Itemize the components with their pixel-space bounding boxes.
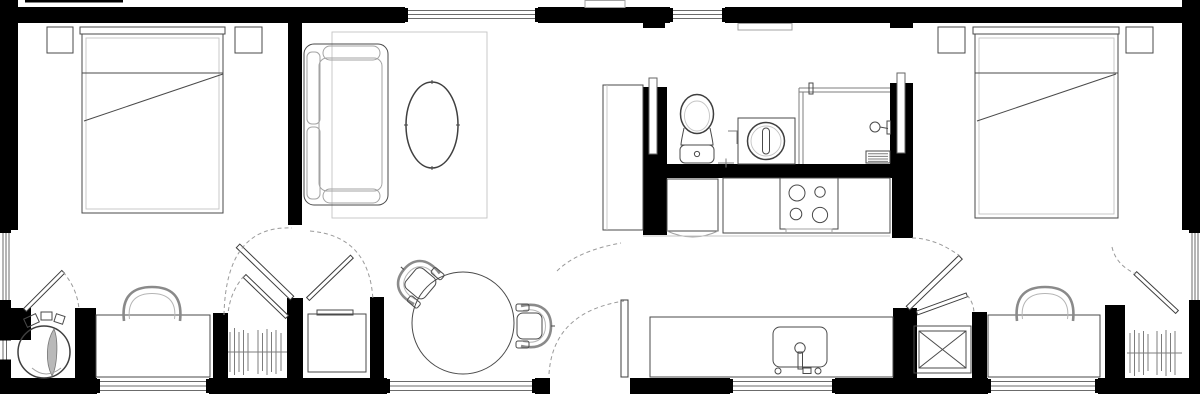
- bath-wall-shelf: [738, 24, 792, 31]
- storage-niche: [308, 310, 366, 372]
- washing-machine: [738, 118, 795, 164]
- toilet: [680, 95, 714, 164]
- window-top-living: [405, 7, 538, 23]
- tall-cabinet: [603, 85, 643, 230]
- window-bottom-desk-right: [988, 378, 1098, 394]
- closet-left: [228, 328, 287, 375]
- shower-head-icon: [870, 121, 891, 134]
- pocket-door-left: [649, 78, 657, 154]
- appliance-box: [914, 326, 971, 373]
- round-dining-table: [412, 272, 514, 374]
- niche-door-leaf: [307, 255, 354, 300]
- bedroom-left: [47, 27, 262, 213]
- nightstand: [1126, 27, 1153, 53]
- entry-door-leaf: [621, 300, 628, 377]
- door-head-stub-right: [890, 23, 913, 28]
- entry-door: [549, 243, 628, 377]
- desk-chair: [124, 287, 181, 321]
- dining-area: [387, 250, 555, 374]
- niche-right-pier: [370, 297, 384, 378]
- window-bottom-dining: [387, 378, 535, 394]
- shower-enclosure: [799, 83, 891, 164]
- appliance-right-pier: [972, 312, 987, 378]
- closet-left-pier: [213, 313, 228, 378]
- desk-right: [988, 287, 1100, 377]
- window-bottom-desk-left: [97, 378, 209, 394]
- closet-right-pier: [1105, 305, 1125, 378]
- closet-right-door-leaf: [1134, 272, 1178, 314]
- hall-right-wall: [892, 178, 913, 238]
- kitchen-sink: [773, 327, 827, 374]
- alcove-right-pier: [75, 308, 96, 378]
- floor-plan: [0, 0, 1200, 401]
- bedroom-left-door-leaf: [236, 244, 293, 300]
- bedroom-left-divider-wall: [288, 23, 302, 225]
- eave-line: [25, 0, 123, 3]
- nightstand: [938, 27, 965, 53]
- alcove-door-leaf: [24, 270, 65, 311]
- doors: [24, 73, 1179, 377]
- living-area: [304, 32, 643, 230]
- window-top-hall: [670, 7, 725, 23]
- closet-right: [1127, 330, 1182, 376]
- center-pier: [287, 298, 303, 378]
- appliance-left-pier: [893, 308, 917, 378]
- bedroom-right: [938, 27, 1153, 218]
- double-bed: [80, 27, 225, 213]
- counter: [723, 178, 890, 233]
- window-left-bedroom: [0, 230, 12, 303]
- bath-kitchen-wall: [643, 164, 913, 178]
- tub-chair: [516, 304, 555, 348]
- desk-left: [96, 287, 210, 377]
- exterior-walls: [0, 0, 1200, 394]
- pocket-door-right: [897, 73, 905, 153]
- kitchen-sink-run: [650, 317, 893, 377]
- exterior-box: [585, 1, 625, 8]
- door-head-stub-left: [643, 23, 665, 28]
- interior-walls: [0, 23, 1125, 378]
- kitchen-upper-run: [643, 178, 890, 237]
- window-right-bedroom: [1189, 230, 1200, 303]
- refrigerator: [667, 179, 718, 231]
- cooktop-4-burner: [780, 178, 838, 233]
- nightstand: [235, 27, 262, 53]
- plumbing-valve-icons: [718, 131, 737, 168]
- drain-grate-icon: [866, 151, 890, 163]
- closet-left-door-leaf: [243, 275, 288, 319]
- desk-chair: [1017, 287, 1074, 321]
- sofa: [304, 44, 388, 205]
- window-bottom-sink: [730, 378, 835, 394]
- oval-coffee-table: [404, 80, 460, 170]
- sink-counter: [650, 317, 893, 377]
- double-bed: [973, 27, 1119, 218]
- niche-cabinet: [308, 314, 366, 372]
- nightstand: [47, 27, 73, 53]
- bathroom: [680, 83, 891, 168]
- window-left-alcove: [0, 338, 11, 362]
